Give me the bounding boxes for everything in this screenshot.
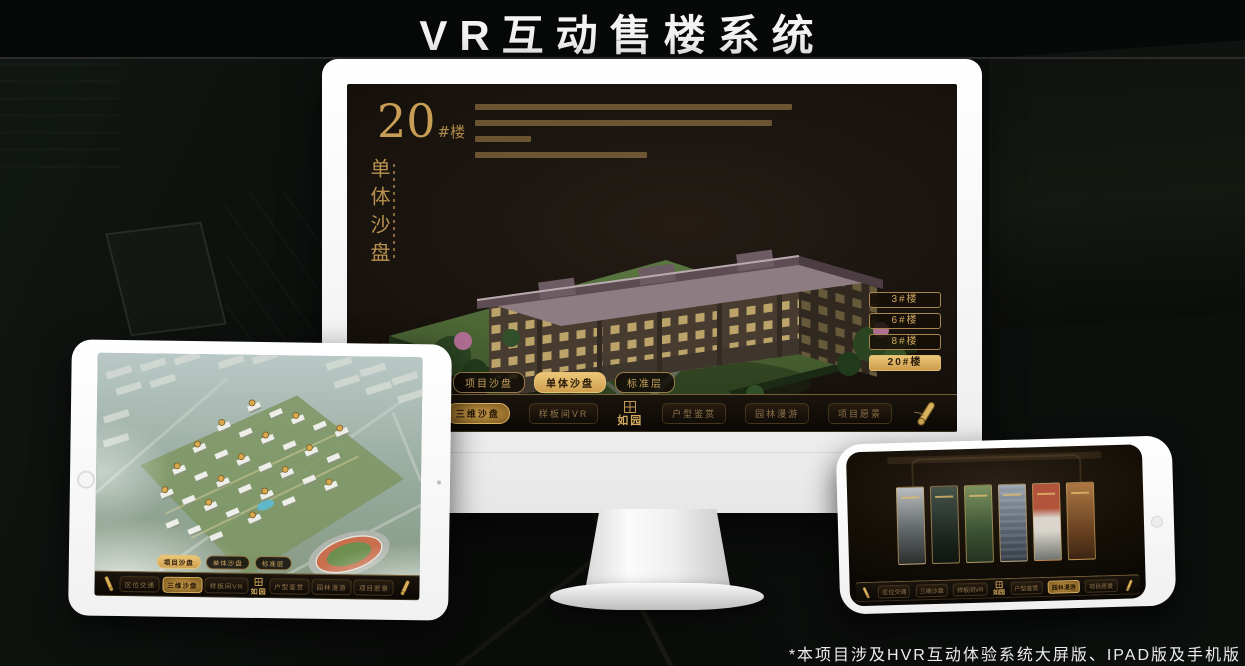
nav-item-garden-roam[interactable]: 园林漫游 xyxy=(1048,580,1080,594)
floor-button-3[interactable]: 3#楼 xyxy=(869,292,941,308)
phone-screen: 区位交通 三维沙盘 样板间VR 如园 户型鉴赏 园林漫游 项目愿景 xyxy=(846,444,1146,606)
scene-panel-landscape[interactable] xyxy=(964,484,994,563)
scene-panel-interior[interactable] xyxy=(1066,482,1096,561)
nav-item-project-vision[interactable]: 项目愿景 xyxy=(354,579,394,596)
description-line xyxy=(475,136,531,142)
scroll-menu-icon[interactable] xyxy=(396,578,413,598)
nav-item-showroom-vr[interactable]: 样板间VR xyxy=(529,403,599,424)
nav-item-3d-sandtable[interactable]: 三维沙盘 xyxy=(162,577,202,594)
brand-seal-icon xyxy=(624,401,636,413)
phone-device: 区位交通 三维沙盘 样板间VR 如园 户型鉴赏 园林漫游 项目愿景 xyxy=(836,435,1177,614)
tablet-home-button[interactable] xyxy=(77,470,95,488)
page-title: VR互动售楼系统 xyxy=(0,2,1245,63)
nav-item-garden-roam[interactable]: 园林漫游 xyxy=(745,403,809,424)
scene-panel-night-garden[interactable] xyxy=(930,485,960,564)
tablet-screen: 项目沙盘 单体沙盘 标准层 区位交通 三维沙盘 样板间VR 如园 xyxy=(94,353,422,601)
brand-logo: 如园 xyxy=(617,401,643,426)
tablet-tabs: 项目沙盘 单体沙盘 标准层 xyxy=(157,555,292,571)
tab-project-sandtable[interactable]: 项目沙盘 xyxy=(453,372,525,393)
block-heading: 20#楼 xyxy=(377,98,465,144)
nav-item-showroom-vr[interactable]: 样板间VR xyxy=(205,577,249,594)
floor-button-6[interactable]: 6#楼 xyxy=(869,313,941,329)
brand-logo-text: 如园 xyxy=(617,415,643,426)
scroll-menu-icon[interactable] xyxy=(911,399,941,429)
nav-item-location-traffic[interactable]: 区位交通 xyxy=(878,585,910,599)
floor-button-8[interactable]: 8#楼 xyxy=(869,334,941,350)
nav-item-garden-roam[interactable]: 园林漫游 xyxy=(311,579,351,596)
scroll-menu-icon[interactable] xyxy=(860,584,873,600)
monitor-stand-base xyxy=(550,583,764,610)
footnote: *本项目涉及HVR互动体验系统大屏版、IPAD版及手机版 xyxy=(789,641,1241,665)
tab-single-sandtable[interactable]: 单体沙盘 xyxy=(206,555,250,570)
tablet-navbar: 区位交通 三维沙盘 样板间VR 如园 户型鉴赏 园林漫游 项目愿景 xyxy=(94,571,419,601)
tab-single-sandtable[interactable]: 单体沙盘 xyxy=(534,372,606,393)
page: VR互动售楼系统 20#楼 单体沙盘 xyxy=(0,0,1245,666)
nav-item-project-vision[interactable]: 项目愿景 xyxy=(1085,579,1117,593)
nav-item-unit-gallery[interactable]: 户型鉴赏 xyxy=(269,578,309,595)
description-line xyxy=(475,120,772,126)
nav-item-3d-sandtable[interactable]: 三维沙盘 xyxy=(916,584,948,598)
brand-logo-text: 如园 xyxy=(251,587,267,594)
scene-panel-gallery xyxy=(847,480,1145,566)
tab-standard-floor[interactable]: 标准层 xyxy=(615,372,675,393)
floor-button-group: 3#楼 6#楼 8#楼 20#楼 xyxy=(869,292,941,371)
scene-panel-autumn[interactable] xyxy=(1032,482,1062,561)
scroll-menu-icon[interactable] xyxy=(100,574,117,594)
brand-logo-text: 如园 xyxy=(993,590,1005,596)
sandtable-tabs: 项目沙盘 单体沙盘 标准层 xyxy=(453,372,675,393)
brand-logo: 如园 xyxy=(251,577,267,594)
brand-seal-icon xyxy=(255,577,263,585)
block-number-suffix: #楼 xyxy=(438,123,466,141)
phone-navbar: 区位交通 三维沙盘 样板间VR 如园 户型鉴赏 园林漫游 项目愿景 xyxy=(856,574,1140,602)
nav-item-unit-gallery[interactable]: 户型鉴赏 xyxy=(662,403,726,424)
scene-panel-facade[interactable] xyxy=(998,483,1028,562)
scroll-menu-icon[interactable] xyxy=(1122,577,1135,593)
nav-item-3d-sandtable[interactable]: 三维沙盘 xyxy=(446,403,510,424)
floor-button-20[interactable]: 20#楼 xyxy=(869,355,941,371)
background-text-blocks xyxy=(0,62,120,182)
nav-item-showroom-vr[interactable]: 样板间VR xyxy=(953,583,988,597)
phone-home-button[interactable] xyxy=(1151,516,1163,528)
nav-item-location-traffic[interactable]: 区位交通 xyxy=(120,576,160,593)
scene-panel-courtyard[interactable] xyxy=(896,486,926,565)
tablet-device: 项目沙盘 单体沙盘 标准层 区位交通 三维沙盘 样板间VR 如园 xyxy=(68,339,452,620)
tablet-camera-icon xyxy=(437,480,441,484)
tab-project-sandtable[interactable]: 项目沙盘 xyxy=(157,555,201,570)
description-line xyxy=(475,104,792,110)
monitor-stand xyxy=(585,509,731,591)
nav-item-unit-gallery[interactable]: 户型鉴赏 xyxy=(1010,581,1042,595)
brand-logo: 如园 xyxy=(993,581,1005,596)
nav-item-project-vision[interactable]: 项目愿景 xyxy=(828,403,892,424)
block-number: 20 xyxy=(377,94,436,148)
background-photo-panel xyxy=(990,40,1245,330)
tab-standard-floor[interactable]: 标准层 xyxy=(255,556,292,571)
brand-seal-icon xyxy=(995,581,1002,588)
